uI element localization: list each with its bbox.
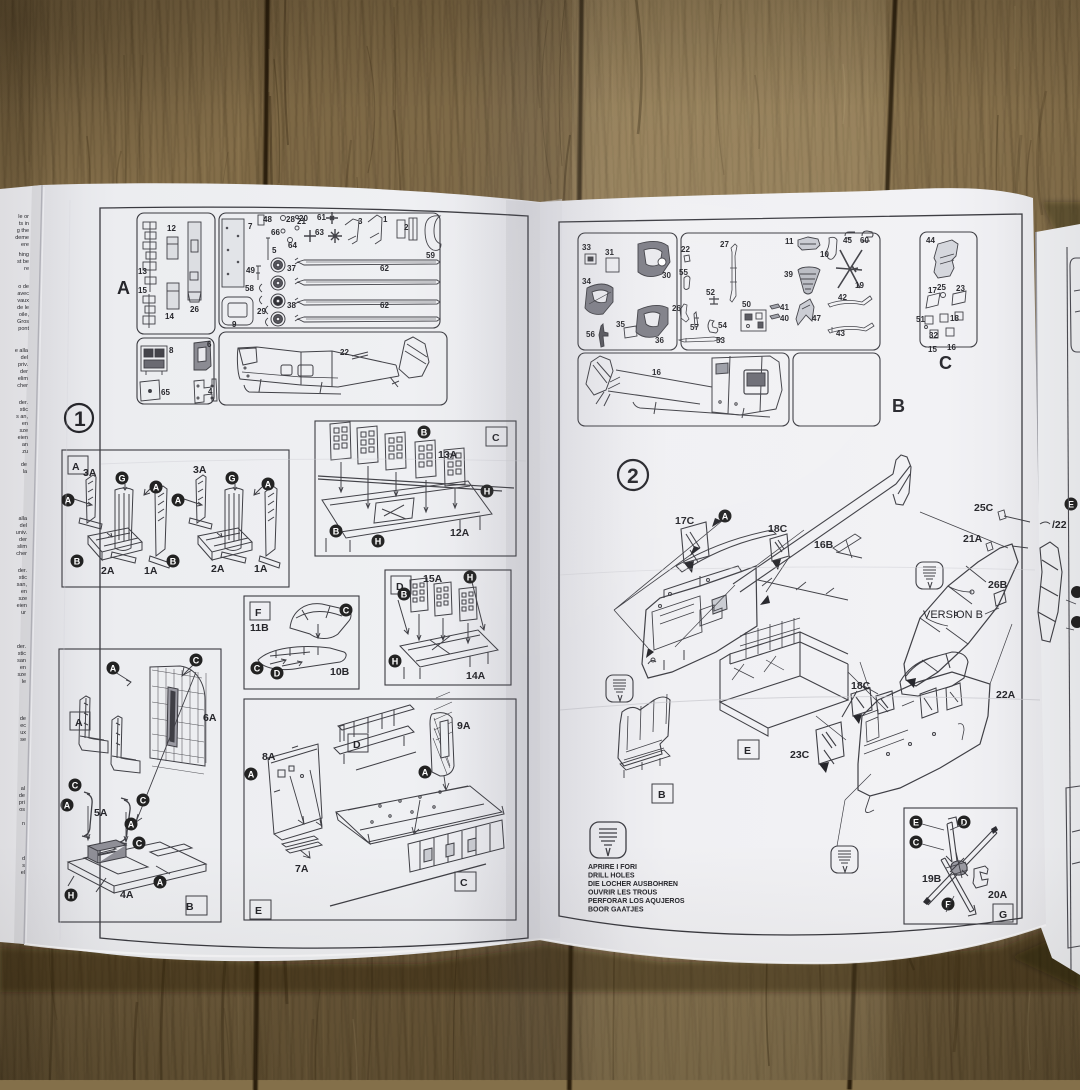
svg-text:stic: stic: [19, 575, 28, 581]
svg-text:C: C: [913, 838, 920, 848]
svg-text:47: 47: [812, 314, 821, 323]
svg-text:/22: /22: [1052, 519, 1067, 531]
svg-text:14: 14: [165, 312, 174, 321]
svg-text:G: G: [118, 474, 125, 484]
svg-text:22: 22: [340, 348, 349, 357]
svg-text:65: 65: [161, 388, 170, 397]
svg-text:en: en: [20, 665, 26, 671]
svg-text:55: 55: [679, 268, 688, 277]
svg-text:3: 3: [358, 217, 363, 226]
svg-text:42: 42: [838, 293, 847, 302]
svg-text:31: 31: [605, 248, 614, 257]
svg-text:le or: le or: [18, 214, 29, 220]
svg-text:der: der: [19, 537, 27, 543]
svg-text:57: 57: [690, 323, 699, 332]
svg-text:H: H: [484, 487, 491, 497]
svg-text:16: 16: [947, 343, 956, 352]
svg-text:49: 49: [246, 266, 255, 275]
svg-text:en: en: [21, 589, 27, 595]
svg-text:50: 50: [742, 300, 751, 309]
svg-text:A: A: [157, 878, 164, 888]
svg-text:30: 30: [662, 271, 671, 280]
svg-text:25C: 25C: [974, 502, 994, 514]
svg-text:A: A: [128, 820, 135, 830]
svg-text:60: 60: [860, 236, 869, 245]
svg-text:6A: 6A: [203, 712, 217, 724]
svg-text:de: de: [20, 716, 26, 722]
svg-text:25: 25: [937, 283, 946, 292]
svg-text:zu: zu: [22, 449, 28, 455]
svg-text:slim: slim: [17, 544, 27, 550]
svg-text:e alla: e alla: [15, 348, 29, 354]
svg-text:9: 9: [232, 320, 237, 329]
svg-text:7: 7: [248, 222, 253, 231]
svg-text:del: del: [21, 355, 28, 361]
svg-text:alla: alla: [18, 516, 28, 522]
svg-text:APRIRE I FORI: APRIRE I FORI: [588, 864, 637, 871]
svg-text:56: 56: [586, 330, 595, 339]
svg-text:26: 26: [672, 304, 681, 313]
svg-text:g the: g the: [17, 228, 29, 234]
svg-text:del: del: [20, 523, 27, 529]
svg-text:an: an: [22, 442, 28, 448]
svg-text:B: B: [892, 396, 905, 416]
svg-text:VERSION B: VERSION B: [923, 609, 983, 621]
svg-text:o de: o de: [18, 284, 29, 290]
svg-text:51: 51: [916, 315, 925, 324]
svg-text:A: A: [64, 801, 71, 811]
svg-text:59: 59: [426, 251, 435, 260]
svg-text:4: 4: [208, 387, 213, 396]
svg-text:C: C: [254, 664, 261, 674]
svg-text:18: 18: [950, 314, 959, 323]
svg-text:E: E: [913, 818, 919, 828]
svg-text:23C: 23C: [790, 749, 810, 761]
svg-text:OUVRIR LES TROUS: OUVRIR LES TROUS: [588, 890, 658, 897]
svg-text:H: H: [392, 657, 399, 667]
svg-text:38: 38: [287, 301, 296, 310]
svg-text:der.: der.: [19, 400, 29, 406]
svg-text:45: 45: [843, 236, 852, 245]
svg-text:A: A: [422, 768, 429, 778]
svg-text:11: 11: [785, 237, 794, 246]
svg-text:2A: 2A: [101, 565, 115, 577]
svg-text:sze: sze: [17, 672, 26, 678]
svg-text:53: 53: [716, 336, 725, 345]
svg-text:66: 66: [271, 228, 280, 237]
svg-text:A: A: [248, 770, 255, 780]
svg-text:36: 36: [655, 336, 664, 345]
svg-text:PERFORAR LOS AQUJEROS: PERFORAR LOS AQUJEROS: [588, 898, 685, 905]
svg-text:26B: 26B: [988, 579, 1008, 591]
svg-text:34: 34: [582, 277, 591, 286]
svg-text:15A: 15A: [423, 573, 443, 585]
svg-text:E: E: [744, 745, 751, 757]
svg-text:41: 41: [780, 303, 789, 312]
svg-text:pri: pri: [19, 800, 25, 806]
svg-text:2: 2: [404, 223, 409, 232]
svg-text:pont: pont: [18, 326, 29, 332]
svg-text:48: 48: [263, 215, 272, 224]
svg-text:17C: 17C: [675, 515, 695, 527]
svg-text:19: 19: [855, 281, 864, 290]
svg-text:21A: 21A: [963, 533, 983, 545]
svg-text:st be: st be: [17, 259, 29, 265]
svg-text:B: B: [401, 590, 408, 600]
svg-text:61: 61: [317, 213, 326, 222]
svg-text:Gros: Gros: [17, 319, 29, 325]
svg-text:univ.: univ.: [16, 530, 28, 536]
svg-text:B: B: [658, 789, 666, 801]
svg-text:5A: 5A: [94, 807, 108, 819]
svg-text:43: 43: [836, 329, 845, 338]
svg-text:5: 5: [272, 246, 277, 255]
svg-text:le: le: [22, 679, 26, 685]
svg-text:A: A: [153, 483, 160, 493]
svg-text:18C: 18C: [851, 680, 871, 692]
svg-text:stic: stic: [20, 407, 29, 413]
svg-text:1A: 1A: [254, 563, 268, 575]
svg-text:40: 40: [780, 314, 789, 323]
svg-text:9A: 9A: [457, 720, 471, 732]
svg-text:1: 1: [383, 215, 388, 224]
svg-text:39: 39: [784, 270, 793, 279]
svg-text:B: B: [186, 901, 194, 913]
svg-text:20A: 20A: [988, 889, 1008, 901]
svg-text:A: A: [117, 278, 130, 298]
svg-text:d: d: [22, 856, 25, 862]
svg-text:n: n: [22, 821, 25, 827]
svg-text:15: 15: [928, 345, 937, 354]
svg-text:der: der: [20, 369, 28, 375]
svg-text:14A: 14A: [466, 670, 486, 682]
svg-text:DRILL HOLES: DRILL HOLES: [588, 873, 635, 880]
svg-text:2A: 2A: [211, 563, 225, 575]
svg-text:13: 13: [138, 267, 147, 276]
svg-text:A: A: [72, 461, 80, 473]
svg-text:A: A: [265, 480, 272, 490]
svg-text:cher: cher: [17, 383, 28, 389]
svg-text:7A: 7A: [295, 863, 309, 875]
svg-text:8A: 8A: [262, 751, 276, 763]
svg-text:san,: san,: [17, 582, 28, 588]
svg-text:re: re: [24, 266, 29, 272]
svg-text:de: de: [21, 462, 27, 468]
svg-text:elim: elim: [18, 376, 29, 382]
svg-text:16B: 16B: [814, 539, 834, 551]
svg-text:os: os: [19, 807, 25, 813]
svg-text:el: el: [21, 870, 25, 876]
svg-text:C: C: [343, 606, 350, 616]
svg-text:52: 52: [706, 288, 715, 297]
svg-text:54: 54: [718, 321, 727, 330]
svg-text:D: D: [961, 818, 968, 828]
svg-text:sze: sze: [18, 596, 27, 602]
svg-text:17: 17: [928, 286, 937, 295]
svg-text:der.: der.: [17, 644, 27, 650]
svg-text:11B: 11B: [250, 622, 269, 634]
svg-text:C: C: [492, 432, 500, 444]
svg-text:stic: stic: [18, 651, 27, 657]
svg-text:priv.: priv.: [18, 362, 28, 368]
svg-text:san: san: [17, 658, 26, 664]
svg-text:35: 35: [616, 320, 625, 329]
svg-text:3A: 3A: [193, 464, 207, 476]
svg-text:ux: ux: [20, 730, 26, 736]
svg-text:A: A: [175, 496, 182, 506]
svg-text:oile,: oile,: [19, 312, 30, 318]
svg-text:62: 62: [380, 264, 389, 273]
svg-text:10: 10: [820, 250, 829, 259]
svg-text:22: 22: [681, 245, 690, 254]
svg-text:26: 26: [190, 305, 199, 314]
svg-text:H: H: [375, 537, 382, 547]
svg-text:ec: ec: [20, 723, 26, 729]
svg-text:en: en: [22, 421, 28, 427]
svg-text:6: 6: [207, 340, 212, 349]
svg-text:12A: 12A: [450, 527, 470, 539]
svg-text:de le: de le: [17, 305, 29, 311]
svg-text:cher: cher: [16, 551, 27, 557]
svg-text:C: C: [193, 656, 200, 666]
svg-text:19B: 19B: [922, 873, 942, 885]
svg-text:28: 28: [286, 215, 295, 224]
svg-text:32: 32: [929, 331, 938, 340]
svg-text:G: G: [228, 474, 235, 484]
svg-text:sze: sze: [19, 428, 28, 434]
svg-text:63: 63: [315, 228, 324, 237]
svg-text:al: al: [21, 786, 25, 792]
svg-text:se: se: [20, 737, 26, 743]
svg-text:C: C: [136, 839, 143, 849]
svg-text:1A: 1A: [144, 565, 158, 577]
svg-text:deme: deme: [15, 235, 29, 241]
svg-text:G: G: [999, 909, 1007, 921]
svg-text:A: A: [75, 717, 83, 729]
svg-text:29: 29: [257, 307, 266, 316]
svg-text:ur: ur: [21, 610, 26, 616]
svg-text:vaux: vaux: [17, 298, 29, 304]
svg-text:C: C: [72, 781, 79, 791]
svg-text:62: 62: [380, 301, 389, 310]
svg-text:18C: 18C: [768, 523, 788, 535]
svg-text:de: de: [19, 793, 25, 799]
svg-text:B: B: [170, 557, 177, 567]
svg-text:der.: der.: [18, 568, 28, 574]
svg-text:58: 58: [245, 284, 254, 293]
svg-text:B: B: [421, 428, 428, 438]
svg-text:27: 27: [720, 240, 729, 249]
svg-text:H: H: [467, 573, 474, 583]
svg-text:23: 23: [956, 284, 965, 293]
svg-text:37: 37: [287, 264, 296, 273]
svg-text:avec: avec: [17, 291, 29, 297]
svg-text:s an,: s an,: [16, 414, 28, 420]
svg-text:hing: hing: [19, 252, 29, 258]
svg-text:DIE LOCHER AUSBOHREN: DIE LOCHER AUSBOHREN: [588, 881, 678, 888]
svg-text:C: C: [140, 796, 147, 806]
svg-text:C: C: [460, 877, 468, 889]
svg-text:D: D: [274, 669, 281, 679]
svg-text:ere: ere: [21, 242, 29, 248]
svg-text:10B: 10B: [330, 666, 350, 678]
svg-text:ts in: ts in: [19, 221, 29, 227]
svg-text:4A: 4A: [120, 889, 134, 901]
svg-text:3A: 3A: [83, 467, 97, 479]
svg-text:2: 2: [627, 465, 639, 488]
svg-text:D: D: [353, 739, 361, 751]
svg-text:33: 33: [582, 243, 591, 252]
svg-text:A: A: [722, 512, 729, 522]
svg-text:16: 16: [652, 368, 661, 377]
svg-text:12: 12: [167, 224, 176, 233]
svg-text:BOOR GAATJES: BOOR GAATJES: [588, 907, 644, 914]
svg-text:1: 1: [74, 408, 86, 431]
svg-text:s: s: [22, 863, 25, 869]
svg-text:64: 64: [288, 241, 297, 250]
svg-text:B: B: [74, 557, 81, 567]
svg-text:C: C: [939, 353, 952, 373]
svg-text:44: 44: [926, 236, 935, 245]
svg-text:H: H: [68, 891, 75, 901]
svg-text:B: B: [333, 527, 340, 537]
svg-text:eien: eien: [17, 603, 27, 609]
svg-text:21: 21: [297, 217, 306, 226]
svg-text:eien: eien: [18, 435, 28, 441]
svg-text:A: A: [110, 664, 117, 674]
svg-text:8: 8: [169, 346, 174, 355]
svg-text:E: E: [255, 905, 262, 917]
svg-text:15: 15: [138, 286, 147, 295]
svg-text:F: F: [255, 607, 262, 619]
